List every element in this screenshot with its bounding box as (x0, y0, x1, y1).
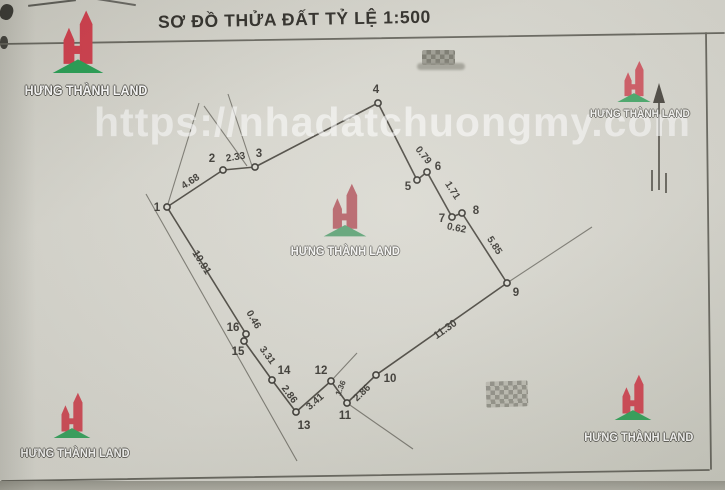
vertex-dot (424, 169, 430, 175)
edge-length-label: 5.85 (484, 234, 504, 257)
vertex-number: 16 (227, 322, 240, 334)
brand-building-icon (51, 388, 93, 446)
vertex-dot (373, 372, 379, 378)
vertex-dot (459, 210, 465, 216)
vertex-dot (504, 280, 510, 286)
brand-building-icon (612, 368, 654, 430)
vertex-number: 15 (232, 346, 245, 358)
vertex-number: 3 (256, 148, 262, 160)
vertex-dot (328, 378, 334, 384)
brand-building-icon (49, 6, 107, 82)
vertex-number: 13 (298, 420, 311, 432)
vertex-dot (269, 377, 275, 383)
watermark-logo-bottom-left: HƯNG THÀNH LAND (16, 388, 128, 460)
vertex-number: 8 (473, 205, 480, 217)
blurred-redaction-bottom (486, 380, 529, 407)
watermark-logo-top-right: HƯNG THÀNH LAND (586, 58, 682, 120)
vertex-number: 11 (339, 410, 352, 422)
edge-length-label: 4.68 (179, 172, 202, 192)
vertex-dot (449, 214, 455, 220)
land-plot-photo: SƠ ĐỒ THỬA ĐẤT TỶ LỆ 1:500 1234567891011… (0, 0, 725, 490)
vertex-dot (252, 164, 258, 170)
vertex-number: 12 (315, 365, 328, 377)
edge-length-label: 2.86 (279, 383, 300, 406)
vertex-dot (243, 331, 249, 337)
edge-length-label: 2.86 (351, 382, 373, 404)
brand-name: HƯNG THÀNH LAND (291, 244, 400, 258)
brand-building-icon (317, 180, 373, 244)
boundary-extension-line (146, 194, 297, 461)
parcel-edge (223, 167, 255, 170)
photo-edge-shadow (0, 481, 725, 490)
frame-border (706, 33, 711, 469)
vertex-dot (414, 177, 420, 183)
brand-name: HƯNG THÀNH LAND (590, 108, 678, 120)
vertex-number: 6 (435, 161, 441, 173)
vertex-dot (293, 409, 299, 415)
vertex-number: 5 (405, 181, 412, 193)
brand-name: HƯNG THÀNH LAND (25, 83, 132, 98)
vertex-number: 4 (373, 84, 380, 96)
edge-length-label: 10.91 (189, 248, 213, 277)
boundary-extension-line (331, 353, 357, 381)
vertex-dot (164, 204, 170, 210)
brand-name: HƯNG THÀNH LAND (20, 446, 123, 460)
watermark-logo-top-left: HƯNG THÀNH LAND (20, 6, 136, 98)
boundary-extension-line (347, 403, 413, 449)
brand-name: HƯNG THÀNH LAND (584, 430, 682, 444)
vertex-dot (241, 338, 247, 344)
vertex-number: 10 (384, 373, 397, 385)
edge-length-label: 0.79 (413, 144, 434, 166)
watermark-logo-bottom-right: HƯNG THÀNH LAND (580, 368, 686, 444)
watermark-logo-center: HƯNG THÀNH LAND (286, 180, 404, 258)
boundary-extension-line (507, 227, 592, 283)
vertex-number: 7 (439, 213, 445, 225)
vertex-dot (344, 400, 350, 406)
edge-length-label: 0.46 (244, 309, 263, 332)
vertex-number: 2 (209, 153, 215, 165)
edge-length-label: 2.33 (225, 151, 246, 165)
frame-border (2, 470, 709, 481)
vertex-number: 1 (154, 202, 161, 214)
brand-building-icon (614, 58, 654, 108)
edge-length-label: 3.41 (304, 391, 326, 412)
vertex-number: 14 (278, 365, 291, 377)
vertex-number: 9 (513, 287, 519, 299)
edge-length-label: 0.62 (446, 221, 468, 236)
blurred-smudge (417, 63, 465, 70)
edge-length-label: 11.30 (431, 317, 459, 342)
vertex-dot (220, 167, 226, 173)
edge-length-label: 1.36 (334, 379, 348, 397)
edge-length-label: 1.71 (442, 179, 462, 202)
